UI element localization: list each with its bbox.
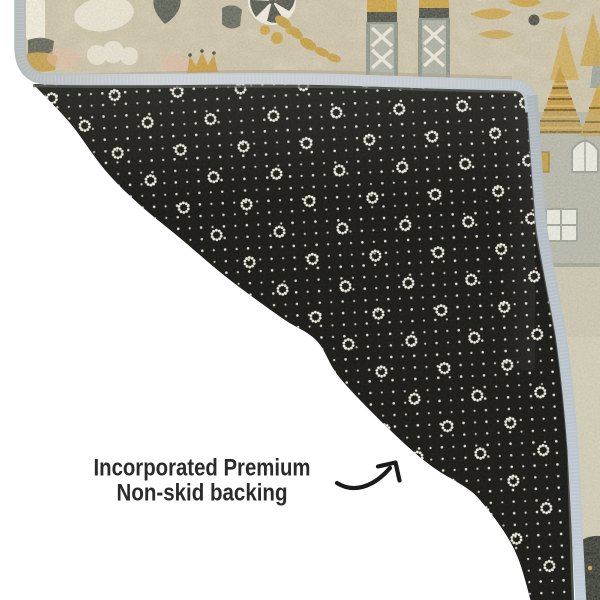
svg-text:Incorporated Premium: Incorporated Premium	[94, 455, 311, 482]
svg-text:Non-skid backing: Non-skid backing	[117, 480, 288, 507]
